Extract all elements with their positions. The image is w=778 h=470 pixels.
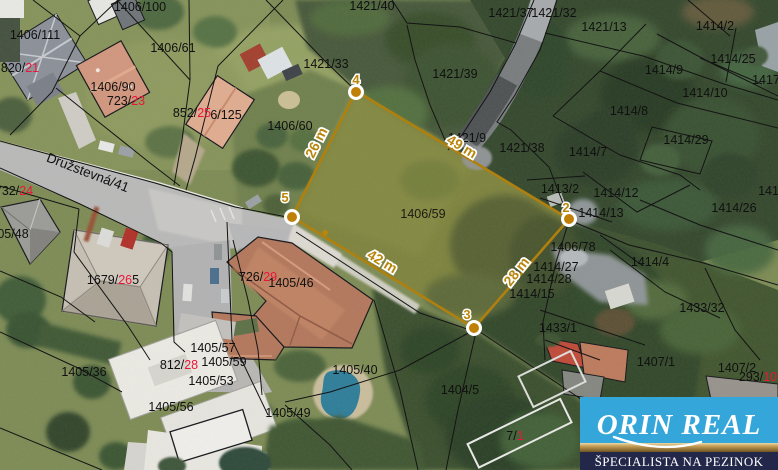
svg-text:1414/2: 1414/2 — [696, 19, 734, 33]
svg-text:293/10: 293/10 — [739, 370, 777, 384]
svg-text:1405/56: 1405/56 — [148, 400, 193, 414]
svg-text:852/25: 852/25 — [173, 106, 211, 120]
svg-text:1679/265: 1679/265 — [87, 273, 139, 287]
svg-text:1421/39: 1421/39 — [432, 67, 477, 81]
svg-text:1417: 1417 — [752, 73, 778, 87]
svg-text:1421/40: 1421/40 — [349, 0, 394, 13]
svg-text:2: 2 — [562, 200, 569, 215]
svg-text:1414/15: 1414/15 — [509, 287, 554, 301]
svg-text:1406/90: 1406/90 — [90, 80, 135, 94]
svg-text:1407/1: 1407/1 — [637, 355, 675, 369]
svg-text:05/48: 05/48 — [0, 227, 29, 241]
svg-text:1433/1: 1433/1 — [539, 321, 577, 335]
svg-text:6/125: 6/125 — [210, 108, 241, 122]
svg-text:1405/53: 1405/53 — [188, 374, 233, 388]
svg-text:1405/59: 1405/59 — [201, 355, 246, 369]
svg-text:1405/36: 1405/36 — [61, 365, 106, 379]
svg-text:4: 4 — [352, 72, 360, 87]
svg-text:1405/49: 1405/49 — [265, 406, 310, 420]
svg-text:1405/46: 1405/46 — [268, 276, 313, 290]
svg-text:7/1: 7/1 — [506, 429, 523, 443]
svg-text:ŠPECIALISTA NA PEZINOK: ŠPECIALISTA NA PEZINOK — [595, 454, 764, 469]
svg-text:1414/8: 1414/8 — [610, 104, 648, 118]
svg-text:1421/38: 1421/38 — [499, 141, 544, 155]
svg-text:ORIN REAL: ORIN REAL — [597, 409, 762, 441]
svg-text:820/21: 820/21 — [1, 61, 39, 75]
svg-text:1404/5: 1404/5 — [441, 383, 479, 397]
svg-text:1421/37: 1421/37 — [488, 6, 533, 20]
svg-text:1414/12: 1414/12 — [593, 186, 638, 200]
svg-text:1406/100: 1406/100 — [114, 0, 166, 14]
svg-text:1414/10: 1414/10 — [682, 86, 727, 100]
svg-text:1405/57: 1405/57 — [190, 341, 235, 355]
svg-text:1421/13: 1421/13 — [581, 20, 626, 34]
svg-text:1405/40: 1405/40 — [332, 363, 377, 377]
svg-text:1433/32: 1433/32 — [679, 301, 724, 315]
svg-text:5: 5 — [281, 190, 288, 205]
svg-text:1413/2: 1413/2 — [541, 182, 579, 196]
svg-text:1414/25: 1414/25 — [710, 52, 755, 66]
svg-text:1406/78: 1406/78 — [550, 240, 595, 254]
svg-text:1414/28: 1414/28 — [526, 272, 571, 286]
svg-text:1414: 1414 — [758, 184, 778, 198]
svg-text:723/23: 723/23 — [107, 94, 145, 108]
svg-text:1406/61: 1406/61 — [150, 41, 195, 55]
svg-text:3: 3 — [463, 307, 470, 322]
svg-text:1414/26: 1414/26 — [711, 201, 756, 215]
svg-text:1406/60: 1406/60 — [267, 119, 312, 133]
svg-text:1414/4: 1414/4 — [631, 255, 669, 269]
svg-text:732/24: 732/24 — [0, 184, 33, 198]
svg-text:1414/13: 1414/13 — [578, 206, 623, 220]
svg-text:1414/29: 1414/29 — [663, 133, 708, 147]
svg-text:1421/33: 1421/33 — [303, 57, 348, 71]
svg-text:812/28: 812/28 — [160, 358, 198, 372]
svg-text:1414/7: 1414/7 — [569, 145, 607, 159]
svg-text:1406/111: 1406/111 — [10, 28, 60, 42]
svg-text:1421/32: 1421/32 — [531, 6, 576, 20]
svg-text:1414/9: 1414/9 — [645, 63, 683, 77]
